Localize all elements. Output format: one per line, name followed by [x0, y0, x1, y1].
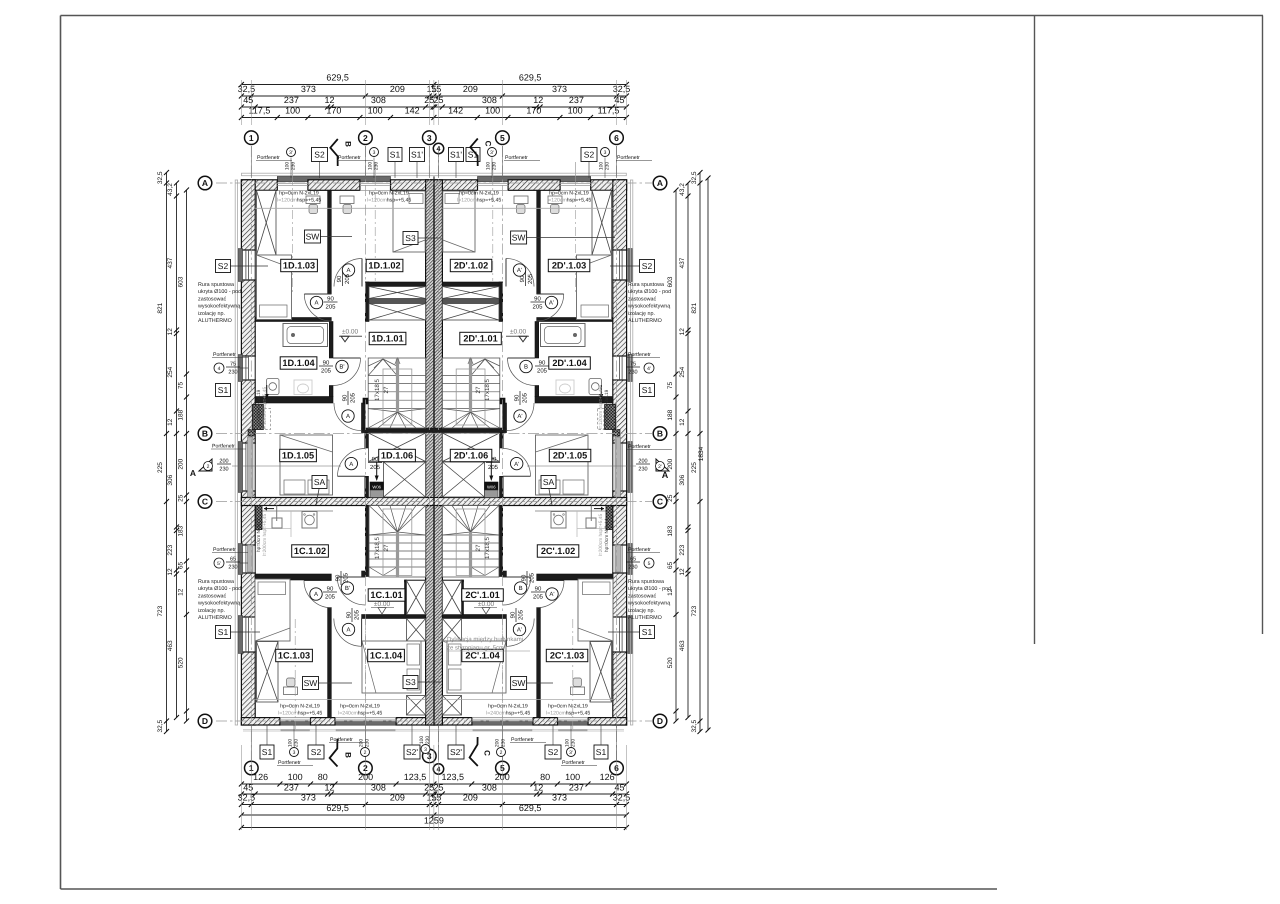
svg-text:wysokoefektywną: wysokoefektywną — [197, 304, 240, 310]
svg-text:Portfenetr: Portfenetr — [562, 760, 585, 766]
svg-text:520: 520 — [178, 657, 185, 668]
svg-text:C: C — [484, 141, 493, 147]
svg-text:Portfenetr: Portfenetr — [212, 444, 235, 450]
svg-text:80: 80 — [318, 772, 328, 782]
svg-text:230: 230 — [501, 739, 507, 748]
svg-text:zastosować: zastosować — [628, 296, 656, 302]
svg-text:1D.1.02: 1D.1.02 — [368, 261, 400, 271]
svg-text:27: 27 — [475, 544, 482, 551]
svg-text:12: 12 — [679, 328, 686, 336]
svg-text:209: 209 — [390, 84, 405, 94]
svg-text:zastosować: zastosować — [198, 296, 226, 302]
svg-text:Portfenetr: Portfenetr — [628, 444, 651, 450]
svg-text:306: 306 — [679, 474, 686, 485]
svg-text:A': A' — [514, 461, 519, 468]
svg-text:230: 230 — [492, 162, 498, 171]
svg-text:75: 75 — [230, 362, 236, 368]
svg-text:65: 65 — [178, 562, 185, 570]
svg-text:B: B — [519, 585, 523, 592]
svg-text:32,5: 32,5 — [613, 84, 631, 94]
svg-text:205: 205 — [533, 593, 544, 600]
svg-text:603: 603 — [667, 276, 674, 287]
svg-text:Rura spustowa: Rura spustowa — [198, 282, 234, 288]
svg-text:12: 12 — [167, 418, 174, 426]
svg-text:3: 3 — [293, 750, 296, 756]
svg-text:3: 3 — [424, 747, 427, 753]
svg-text:723: 723 — [691, 605, 698, 616]
svg-text:100: 100 — [368, 106, 383, 116]
svg-text:A: A — [190, 468, 196, 478]
svg-text:hsp=+5,45: hsp=+5,45 — [566, 711, 591, 717]
svg-text:237: 237 — [284, 783, 299, 793]
svg-text:hsp=+5,45: hsp=+5,45 — [298, 711, 323, 717]
svg-text:90: 90 — [327, 586, 334, 593]
svg-text:90: 90 — [372, 456, 379, 463]
svg-text:230: 230 — [628, 369, 637, 375]
svg-text:90: 90 — [336, 275, 343, 282]
svg-text:hp=0cm N-2xL19: hp=0cm N-2xL19 — [256, 389, 262, 426]
svg-text:463: 463 — [679, 640, 686, 651]
svg-text:306: 306 — [167, 474, 174, 485]
svg-text:12: 12 — [533, 783, 543, 793]
svg-text:2C'.1.02: 2C'.1.02 — [541, 546, 575, 556]
svg-text:205: 205 — [353, 609, 360, 620]
svg-text:S1': S1' — [450, 149, 462, 159]
svg-text:1C.1.03: 1C.1.03 — [278, 651, 310, 661]
svg-text:2: 2 — [364, 750, 367, 756]
svg-text:15: 15 — [431, 793, 441, 803]
svg-text:wysokoefektywną: wysokoefektywną — [197, 601, 240, 607]
svg-text:D: D — [202, 716, 208, 726]
svg-text:izolację np.: izolację np. — [198, 311, 225, 317]
svg-text:43,2: 43,2 — [167, 183, 174, 196]
svg-text:45: 45 — [614, 95, 624, 105]
svg-text:32,5: 32,5 — [157, 719, 164, 732]
svg-text:hp=0cm N-2xL19: hp=0cm N-2xL19 — [459, 191, 499, 197]
svg-text:S1: S1 — [390, 149, 401, 159]
svg-text:ALUTHERMO: ALUTHERMO — [198, 615, 232, 621]
svg-text:zastosować: zastosować — [198, 593, 226, 599]
svg-text:A: A — [346, 413, 350, 420]
svg-text:SW: SW — [306, 231, 320, 241]
svg-text:2: 2 — [207, 464, 210, 470]
svg-text:373: 373 — [552, 84, 567, 94]
svg-text:ukryta Ø100 - pod: ukryta Ø100 - pod — [198, 586, 241, 592]
svg-text:205: 205 — [517, 609, 524, 620]
svg-text:izolację np.: izolację np. — [628, 608, 655, 614]
svg-text:12: 12 — [679, 568, 686, 576]
svg-text:A: A — [314, 591, 318, 598]
svg-text:629,5: 629,5 — [519, 803, 542, 813]
svg-text:230: 230 — [571, 739, 577, 748]
svg-text:D: D — [657, 716, 663, 726]
svg-text:45: 45 — [243, 783, 253, 793]
svg-text:223: 223 — [679, 544, 686, 555]
svg-text:230: 230 — [219, 466, 228, 472]
svg-text:205: 205 — [528, 572, 535, 583]
svg-text:C: C — [202, 497, 208, 507]
svg-text:1D.1.01: 1D.1.01 — [371, 334, 403, 344]
svg-text:100: 100 — [568, 106, 583, 116]
svg-text:Portfenetr: Portfenetr — [213, 352, 236, 358]
svg-text:90: 90 — [539, 360, 546, 367]
svg-text:27: 27 — [383, 544, 390, 551]
svg-text:205: 205 — [370, 464, 381, 471]
svg-text:S2: S2 — [642, 261, 653, 271]
svg-text:12: 12 — [324, 783, 334, 793]
svg-text:821: 821 — [157, 302, 164, 313]
svg-text:25: 25 — [667, 494, 674, 502]
svg-text:254: 254 — [167, 366, 174, 377]
svg-text:65: 65 — [230, 557, 236, 563]
svg-text:237: 237 — [569, 783, 584, 793]
svg-text:209: 209 — [463, 84, 478, 94]
svg-text:A': A' — [549, 591, 554, 598]
svg-text:373: 373 — [552, 793, 567, 803]
svg-text:629,5: 629,5 — [326, 73, 349, 83]
svg-text:230: 230 — [374, 162, 380, 171]
svg-text:205: 205 — [325, 593, 336, 600]
svg-text:W06: W06 — [487, 484, 496, 489]
svg-text:hp=0cm N-2xL1: hp=0cm N-2xL1 — [604, 518, 610, 552]
svg-text:A: A — [349, 461, 353, 468]
svg-text:hsp=+5,45: hsp=+5,45 — [506, 711, 531, 717]
svg-text:80: 80 — [540, 772, 550, 782]
svg-text:520: 520 — [667, 657, 674, 668]
svg-text:629,5: 629,5 — [326, 803, 349, 813]
svg-text:43,2: 43,2 — [679, 183, 686, 196]
svg-text:±0.00: ±0.00 — [510, 329, 527, 336]
svg-text:27: 27 — [383, 386, 390, 393]
svg-text:437: 437 — [679, 257, 686, 268]
svg-text:27: 27 — [475, 386, 482, 393]
svg-text:6: 6 — [614, 133, 619, 143]
svg-text:hp=0cm N-2xL19: hp=0cm N-2xL19 — [488, 704, 528, 710]
svg-text:225: 225 — [157, 462, 164, 473]
svg-text:200: 200 — [178, 458, 185, 469]
svg-text:223: 223 — [167, 544, 174, 555]
svg-text:183: 183 — [178, 525, 185, 536]
svg-text:2': 2' — [658, 464, 662, 470]
svg-text:l=120cm: l=120cm — [546, 711, 566, 717]
svg-text:373: 373 — [301, 793, 316, 803]
svg-text:5': 5' — [217, 561, 221, 567]
svg-text:90: 90 — [327, 296, 334, 303]
svg-text:126: 126 — [253, 772, 268, 782]
svg-text:90: 90 — [510, 611, 517, 618]
svg-text:A: A — [346, 627, 350, 634]
svg-text:90: 90 — [346, 611, 353, 618]
svg-text:S1': S1' — [411, 149, 423, 159]
svg-text:S1: S1 — [596, 747, 607, 757]
svg-text:254: 254 — [679, 366, 686, 377]
svg-text:S2: S2 — [311, 747, 322, 757]
svg-text:1C.1.01: 1C.1.01 — [370, 590, 402, 600]
svg-text:l=120cm: l=120cm — [547, 198, 567, 204]
svg-text:117,5: 117,5 — [598, 106, 620, 116]
svg-text:90: 90 — [519, 275, 526, 282]
svg-text:821: 821 — [691, 302, 698, 313]
svg-text:65: 65 — [667, 562, 674, 570]
svg-text:308: 308 — [371, 95, 386, 105]
svg-text:l=120cm: l=120cm — [278, 711, 298, 717]
svg-text:3': 3' — [569, 750, 573, 756]
svg-text:123,5: 123,5 — [404, 772, 427, 782]
svg-text:SW: SW — [512, 232, 526, 242]
svg-text:100: 100 — [485, 106, 500, 116]
svg-text:308: 308 — [371, 783, 386, 793]
svg-text:SA: SA — [543, 477, 555, 487]
svg-text:3: 3 — [427, 133, 432, 143]
svg-text:A': A' — [517, 413, 522, 420]
svg-text:205: 205 — [342, 572, 349, 583]
svg-text:wysokoefektywną: wysokoefektywną — [627, 601, 670, 607]
svg-text:25: 25 — [178, 494, 185, 502]
svg-text:200: 200 — [638, 459, 647, 465]
svg-text:S1: S1 — [642, 627, 653, 637]
svg-text:hp=0cm N-2xL19: hp=0cm N-2xL19 — [340, 704, 380, 710]
svg-text:12: 12 — [167, 568, 174, 576]
svg-text:hp=0cm N-2xL19: hp=0cm N-2xL19 — [279, 191, 319, 197]
svg-text:126: 126 — [600, 772, 615, 782]
svg-text:1834: 1834 — [698, 446, 705, 461]
svg-text:100: 100 — [288, 772, 303, 782]
svg-text:A': A' — [517, 267, 522, 274]
svg-text:230: 230 — [291, 162, 297, 171]
svg-text:205: 205 — [349, 392, 356, 403]
svg-text:l=120cm: l=120cm — [277, 198, 297, 204]
svg-text:Portfenetr: Portfenetr — [257, 155, 280, 161]
svg-text:Rura spustowa: Rura spustowa — [628, 282, 664, 288]
svg-text:123,5: 123,5 — [442, 772, 465, 782]
svg-text:230: 230 — [638, 466, 647, 472]
svg-text:Portfenetr: Portfenetr — [338, 155, 361, 161]
svg-text:l=240cm: l=240cm — [486, 711, 506, 717]
svg-text:170: 170 — [526, 106, 541, 116]
svg-text:32,5: 32,5 — [613, 793, 631, 803]
svg-text:1D.1.03: 1D.1.03 — [283, 261, 315, 271]
svg-text:l=200cm hsp=+5,45: l=200cm hsp=+5,45 — [262, 514, 268, 557]
svg-text:205: 205 — [321, 367, 332, 374]
svg-text:142: 142 — [448, 106, 463, 116]
svg-text:S1: S1 — [642, 385, 653, 395]
svg-text:hsp=+5,45: hsp=+5,45 — [477, 198, 502, 204]
svg-text:S1: S1 — [218, 627, 229, 637]
svg-text:17x18,5: 17x18,5 — [374, 536, 381, 559]
svg-text:Portfenetr: Portfenetr — [505, 155, 528, 161]
svg-text:230: 230 — [425, 736, 431, 745]
svg-text:Portfenetr: Portfenetr — [628, 547, 651, 553]
svg-text:230: 230 — [628, 564, 637, 570]
svg-text:4: 4 — [218, 366, 221, 372]
svg-text:A: A — [202, 178, 208, 188]
svg-text:SW: SW — [512, 678, 526, 688]
svg-text:hp=0cm N-2xL19: hp=0cm N-2xL19 — [549, 191, 589, 197]
svg-text:B: B — [344, 141, 353, 147]
svg-text:B: B — [344, 752, 353, 758]
svg-text:100: 100 — [285, 106, 300, 116]
svg-text:200: 200 — [219, 459, 228, 465]
svg-text:S2: S2 — [548, 747, 559, 757]
svg-text:1D.1.05: 1D.1.05 — [282, 451, 314, 461]
svg-text:2C'.1.03: 2C'.1.03 — [550, 651, 584, 661]
svg-text:90: 90 — [342, 394, 349, 401]
svg-text:205: 205 — [532, 303, 543, 310]
svg-text:90: 90 — [534, 296, 541, 303]
svg-text:2D'.1.05: 2D'.1.05 — [553, 451, 587, 461]
svg-text:A': A' — [549, 300, 554, 307]
svg-text:l=120cm: l=120cm — [457, 198, 477, 204]
svg-text:Dylatacja między budynkami: Dylatacja między budynkami — [447, 636, 523, 643]
svg-text:5: 5 — [648, 561, 651, 567]
svg-text:S2: S2 — [584, 149, 595, 159]
svg-text:l=120cm hsp=+5,45: l=120cm hsp=+5,45 — [262, 387, 268, 430]
svg-text:1D.1.04: 1D.1.04 — [282, 358, 315, 368]
svg-text:B: B — [202, 429, 208, 439]
svg-text:90: 90 — [521, 574, 528, 581]
svg-text:2D'.1.01: 2D'.1.01 — [463, 334, 497, 344]
svg-text:188: 188 — [178, 409, 185, 420]
svg-text:170: 170 — [326, 106, 341, 116]
svg-text:373: 373 — [301, 84, 316, 94]
svg-text:12: 12 — [324, 95, 334, 105]
svg-text:Portfenetr: Portfenetr — [617, 155, 640, 161]
svg-text:32,5: 32,5 — [691, 171, 698, 184]
svg-text:A: A — [346, 267, 350, 274]
svg-text:S3: S3 — [405, 233, 416, 243]
svg-text:wysokoefektywną: wysokoefektywną — [627, 304, 670, 310]
svg-text:15: 15 — [431, 84, 441, 94]
svg-text:32,5: 32,5 — [691, 719, 698, 732]
svg-text:B: B — [657, 429, 663, 439]
svg-text:izolację np.: izolację np. — [628, 311, 655, 317]
svg-text:209: 209 — [463, 793, 478, 803]
svg-text:90: 90 — [335, 574, 342, 581]
svg-text:32,5: 32,5 — [238, 84, 256, 94]
svg-text:S2: S2 — [218, 261, 229, 271]
svg-text:Portfenetr: Portfenetr — [213, 547, 236, 553]
svg-text:B': B' — [345, 585, 350, 592]
svg-text:3: 3 — [373, 150, 376, 156]
svg-text:629,5: 629,5 — [519, 73, 542, 83]
svg-text:225: 225 — [691, 462, 698, 473]
svg-text:SA: SA — [314, 477, 326, 487]
svg-text:100: 100 — [565, 772, 580, 782]
svg-text:hp=0cm N-2xL19: hp=0cm N-2xL19 — [548, 704, 588, 710]
svg-text:2C'.1.04: 2C'.1.04 — [465, 651, 500, 661]
svg-text:ALUTHERMO: ALUTHERMO — [628, 318, 662, 324]
svg-text:hp=0cm N-2xL19: hp=0cm N-2xL19 — [369, 191, 409, 197]
svg-text:45: 45 — [243, 95, 253, 105]
svg-text:hp=0cm N-2xL19: hp=0cm N-2xL19 — [604, 389, 610, 426]
svg-text:l=240cm: l=240cm — [338, 711, 358, 717]
svg-text:hsp=+5,45: hsp=+5,45 — [358, 711, 383, 717]
svg-text:75: 75 — [667, 382, 674, 390]
svg-text:142: 142 — [405, 106, 420, 116]
svg-text:ALUTHERMO: ALUTHERMO — [198, 318, 232, 324]
svg-text:Portfenetr: Portfenetr — [330, 737, 353, 743]
svg-text:S2': S2' — [406, 747, 418, 757]
svg-text:2D'.1.06: 2D'.1.06 — [454, 451, 488, 461]
svg-text:hsp=+5,45: hsp=+5,45 — [297, 198, 322, 204]
svg-text:l=120cm: l=120cm — [367, 198, 387, 204]
svg-text:±0.00: ±0.00 — [374, 601, 391, 608]
svg-text:2D'.1.02: 2D'.1.02 — [454, 261, 488, 271]
svg-text:12: 12 — [533, 95, 543, 105]
svg-text:S1: S1 — [262, 747, 273, 757]
svg-text:2: 2 — [363, 133, 368, 143]
svg-text:hp=0cm N-2xL1: hp=0cm N-2xL1 — [256, 518, 262, 552]
svg-text:ukryta Ø100 - pod: ukryta Ø100 - pod — [628, 586, 671, 592]
svg-text:1D.1.06: 1D.1.06 — [381, 451, 413, 461]
svg-text:237: 237 — [284, 95, 299, 105]
svg-text:C: C — [657, 497, 663, 507]
svg-text:1: 1 — [249, 133, 254, 143]
svg-text:603: 603 — [178, 276, 185, 287]
svg-text:ukryta Ø100 - pod: ukryta Ø100 - pod — [198, 289, 241, 295]
svg-text:2D'.1.03: 2D'.1.03 — [552, 261, 586, 271]
svg-text:B: B — [524, 364, 528, 371]
svg-text:205: 205 — [521, 392, 528, 403]
svg-text:S2: S2 — [314, 149, 325, 159]
svg-text:1C.1.04: 1C.1.04 — [370, 651, 403, 661]
svg-text:ALUTHERMO: ALUTHERMO — [628, 615, 662, 621]
svg-text:ukryta Ø100 - pod: ukryta Ø100 - pod — [628, 289, 671, 295]
svg-text:5: 5 — [500, 133, 505, 143]
svg-text:A: A — [657, 178, 663, 188]
svg-text:12: 12 — [167, 328, 174, 336]
svg-text:230: 230 — [605, 162, 611, 171]
svg-text:205: 205 — [325, 303, 336, 310]
svg-text:723: 723 — [157, 605, 164, 616]
svg-text:±0.00: ±0.00 — [342, 329, 359, 336]
svg-text:±0.00: ±0.00 — [478, 601, 495, 608]
svg-text:17x18,5: 17x18,5 — [484, 536, 491, 559]
svg-text:SW: SW — [304, 678, 318, 688]
svg-text:1C.1.02: 1C.1.02 — [294, 546, 326, 556]
svg-text:Portfenetr: Portfenetr — [628, 352, 651, 358]
svg-text:zastosować: zastosować — [628, 593, 656, 599]
svg-text:188: 188 — [667, 409, 674, 420]
svg-text:65: 65 — [630, 557, 636, 563]
svg-text:3: 3 — [604, 150, 607, 156]
svg-text:l=120cm hsp=+5,45: l=120cm hsp=+5,45 — [598, 387, 604, 430]
svg-text:209: 209 — [390, 793, 405, 803]
svg-text:205: 205 — [488, 464, 499, 471]
svg-text:90: 90 — [514, 394, 521, 401]
svg-text:S3: S3 — [405, 677, 416, 687]
svg-text:183: 183 — [667, 525, 674, 536]
svg-text:W06: W06 — [372, 484, 381, 489]
svg-text:90: 90 — [535, 586, 542, 593]
svg-text:463: 463 — [167, 640, 174, 651]
svg-text:B': B' — [339, 364, 344, 371]
svg-text:12: 12 — [679, 418, 686, 426]
svg-text:A: A — [314, 300, 318, 307]
svg-text:2: 2 — [500, 750, 503, 756]
svg-text:2D'.1.04: 2D'.1.04 — [552, 358, 587, 368]
svg-text:75: 75 — [630, 362, 636, 368]
svg-text:32,5: 32,5 — [238, 793, 256, 803]
svg-text:308: 308 — [482, 783, 497, 793]
svg-text:3': 3' — [490, 150, 494, 156]
svg-text:205: 205 — [537, 367, 548, 374]
svg-text:32,5: 32,5 — [157, 171, 164, 184]
svg-text:S2': S2' — [450, 747, 462, 757]
svg-text:hp=0cm N-2xL19: hp=0cm N-2xL19 — [280, 704, 320, 710]
svg-text:200: 200 — [667, 458, 674, 469]
svg-text:Portfenetr: Portfenetr — [511, 737, 534, 743]
